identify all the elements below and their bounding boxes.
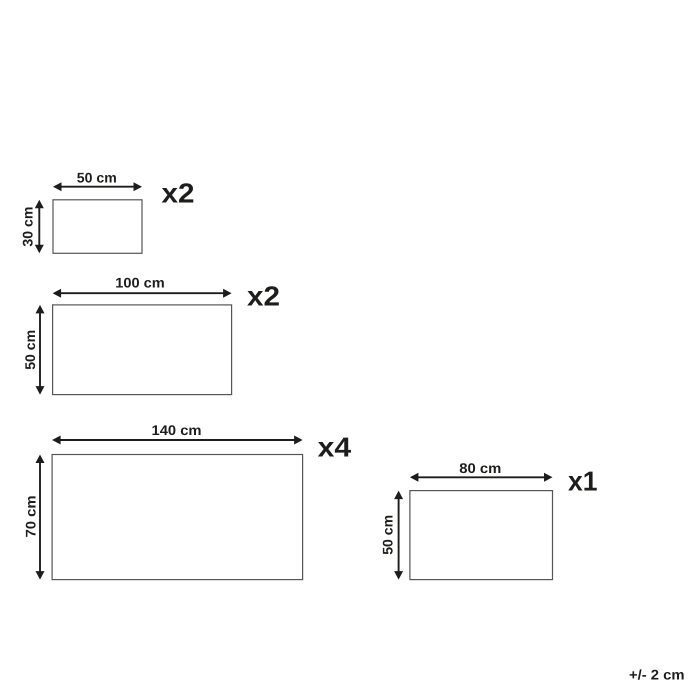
svg-text:x1: x1: [568, 465, 598, 496]
svg-text:50 cm: 50 cm: [380, 515, 396, 555]
svg-text:140 cm: 140 cm: [152, 422, 202, 438]
svg-text:x2: x2: [247, 280, 280, 311]
svg-text:100 cm: 100 cm: [115, 275, 165, 291]
svg-text:x2: x2: [162, 177, 195, 208]
svg-text:+/- 2 cm: +/- 2 cm: [629, 666, 685, 682]
svg-text:70 cm: 70 cm: [23, 496, 39, 538]
svg-text:x4: x4: [318, 431, 352, 462]
svg-text:80 cm: 80 cm: [459, 460, 501, 476]
svg-text:50 cm: 50 cm: [77, 170, 117, 186]
svg-text:50 cm: 50 cm: [22, 330, 38, 370]
svg-text:30 cm: 30 cm: [20, 207, 36, 247]
